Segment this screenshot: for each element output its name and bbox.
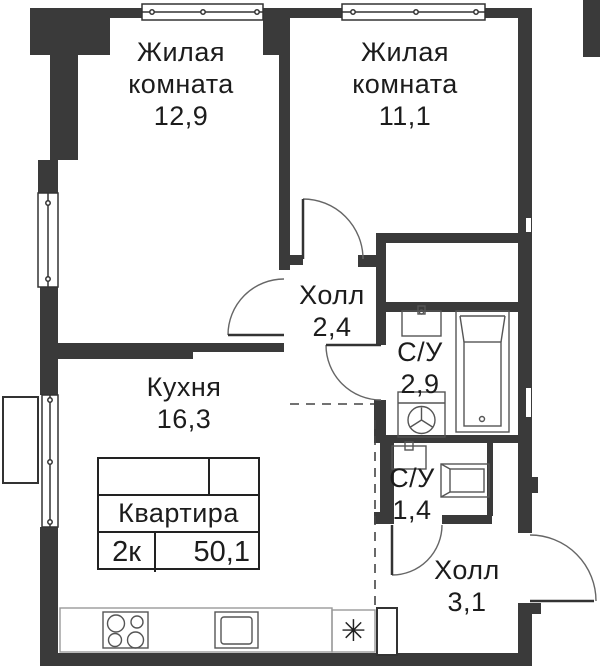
wall	[376, 435, 518, 443]
wall-left	[38, 160, 58, 193]
stamp-title: Квартира	[99, 496, 258, 533]
stamp-type: 2к	[99, 533, 156, 572]
balcony-box	[3, 397, 38, 483]
door-arc-living1	[228, 279, 284, 335]
floor-plan: Жилая комната 12,9 Жилая комната 11,1 Хо…	[0, 0, 600, 671]
door-arc-entrance	[530, 535, 596, 601]
wall-kitchen-top	[193, 343, 284, 352]
door-leaf-kitchen	[377, 608, 397, 655]
room-label-kitchen: Кухня 16,3	[124, 371, 244, 435]
washer-place-icon: ✳	[332, 610, 375, 652]
wall-neighbor	[583, 0, 600, 57]
room-label-bathroom-small: С/У 1,4	[372, 462, 452, 526]
door-arc-bathroom-large	[326, 345, 381, 400]
wall-left	[40, 287, 58, 395]
wall	[376, 233, 532, 243]
stamp-row-values: 2к 50,1	[99, 533, 258, 572]
wall	[290, 8, 342, 18]
wall	[485, 8, 532, 18]
wall-pier	[50, 55, 78, 160]
stove	[103, 612, 148, 648]
room-label-living2: Жилая комната 11,1	[315, 36, 495, 132]
stamp-row-empty	[99, 459, 258, 496]
door-arc-living2	[303, 199, 363, 259]
room-label-hall-upper: Холл 2,4	[282, 279, 382, 343]
stamp-total-area: 50,1	[156, 533, 258, 572]
duct-wall	[487, 443, 493, 516]
dashed-boundaries	[290, 404, 375, 607]
stamp-table: Квартира 2к 50,1	[97, 457, 260, 570]
wall-stub	[289, 255, 303, 265]
wall-between-rooms	[279, 18, 290, 270]
wall	[110, 8, 142, 18]
wall-stub	[532, 477, 538, 493]
room-label-bathroom-large: С/У 2,9	[380, 336, 460, 400]
bathtub	[456, 311, 509, 432]
room-label-living1: Жилая комната 12,9	[91, 36, 271, 132]
kitchen-counter	[60, 608, 332, 652]
wall-left	[40, 527, 58, 666]
wall-right	[518, 18, 532, 533]
room-label-hall-lower: Холл 3,1	[417, 554, 517, 618]
kitchen-sink	[215, 612, 258, 648]
wall-kitchen-top	[58, 343, 193, 359]
washbasin-large	[402, 306, 441, 336]
wall-stub	[532, 603, 541, 614]
wall-bottom	[40, 653, 532, 666]
